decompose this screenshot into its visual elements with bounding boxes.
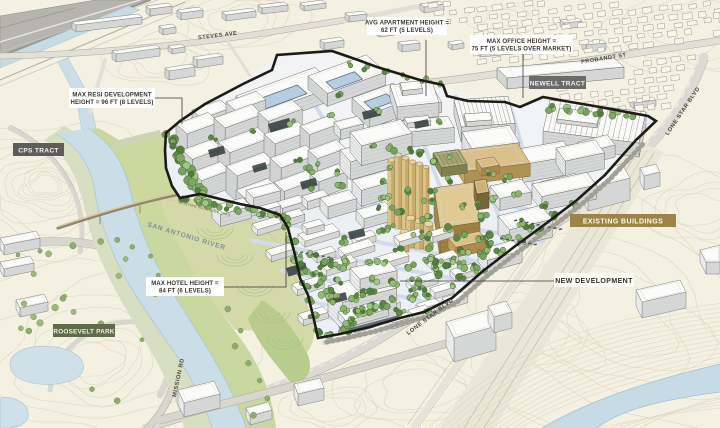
svg-text:CPS TRACT: CPS TRACT [18, 148, 58, 155]
svg-text:ROOSEVELT PARK: ROOSEVELT PARK [53, 329, 114, 336]
svg-text:EXISTING BUILDINGS: EXISTING BUILDINGS [583, 219, 663, 226]
svg-text:AVG APARTMENT HEIGHT =: AVG APARTMENT HEIGHT = [365, 21, 449, 27]
svg-text:NEW DEVELOPMENT: NEW DEVELOPMENT [555, 278, 633, 285]
svg-text:NEWELL TRACT: NEWELL TRACT [530, 81, 586, 88]
svg-text:MAX RESI DEVELOPMENT: MAX RESI DEVELOPMENT [72, 93, 152, 99]
svg-text:84 FT (6 LEVELS): 84 FT (6 LEVELS) [159, 288, 211, 294]
svg-text:MAX OFFICE HEIGHT =: MAX OFFICE HEIGHT = [487, 39, 557, 45]
svg-text:75 FT (5 LEVELS OVER MARKET): 75 FT (5 LEVELS OVER MARKET) [472, 46, 572, 52]
svg-text:62 FT (5 LEVELS): 62 FT (5 LEVELS) [381, 28, 433, 34]
svg-text:MAX HOTEL HEIGHT =: MAX HOTEL HEIGHT = [151, 281, 219, 287]
svg-text:HEIGHT = 96 FT (8 LEVELS): HEIGHT = 96 FT (8 LEVELS) [71, 100, 154, 106]
